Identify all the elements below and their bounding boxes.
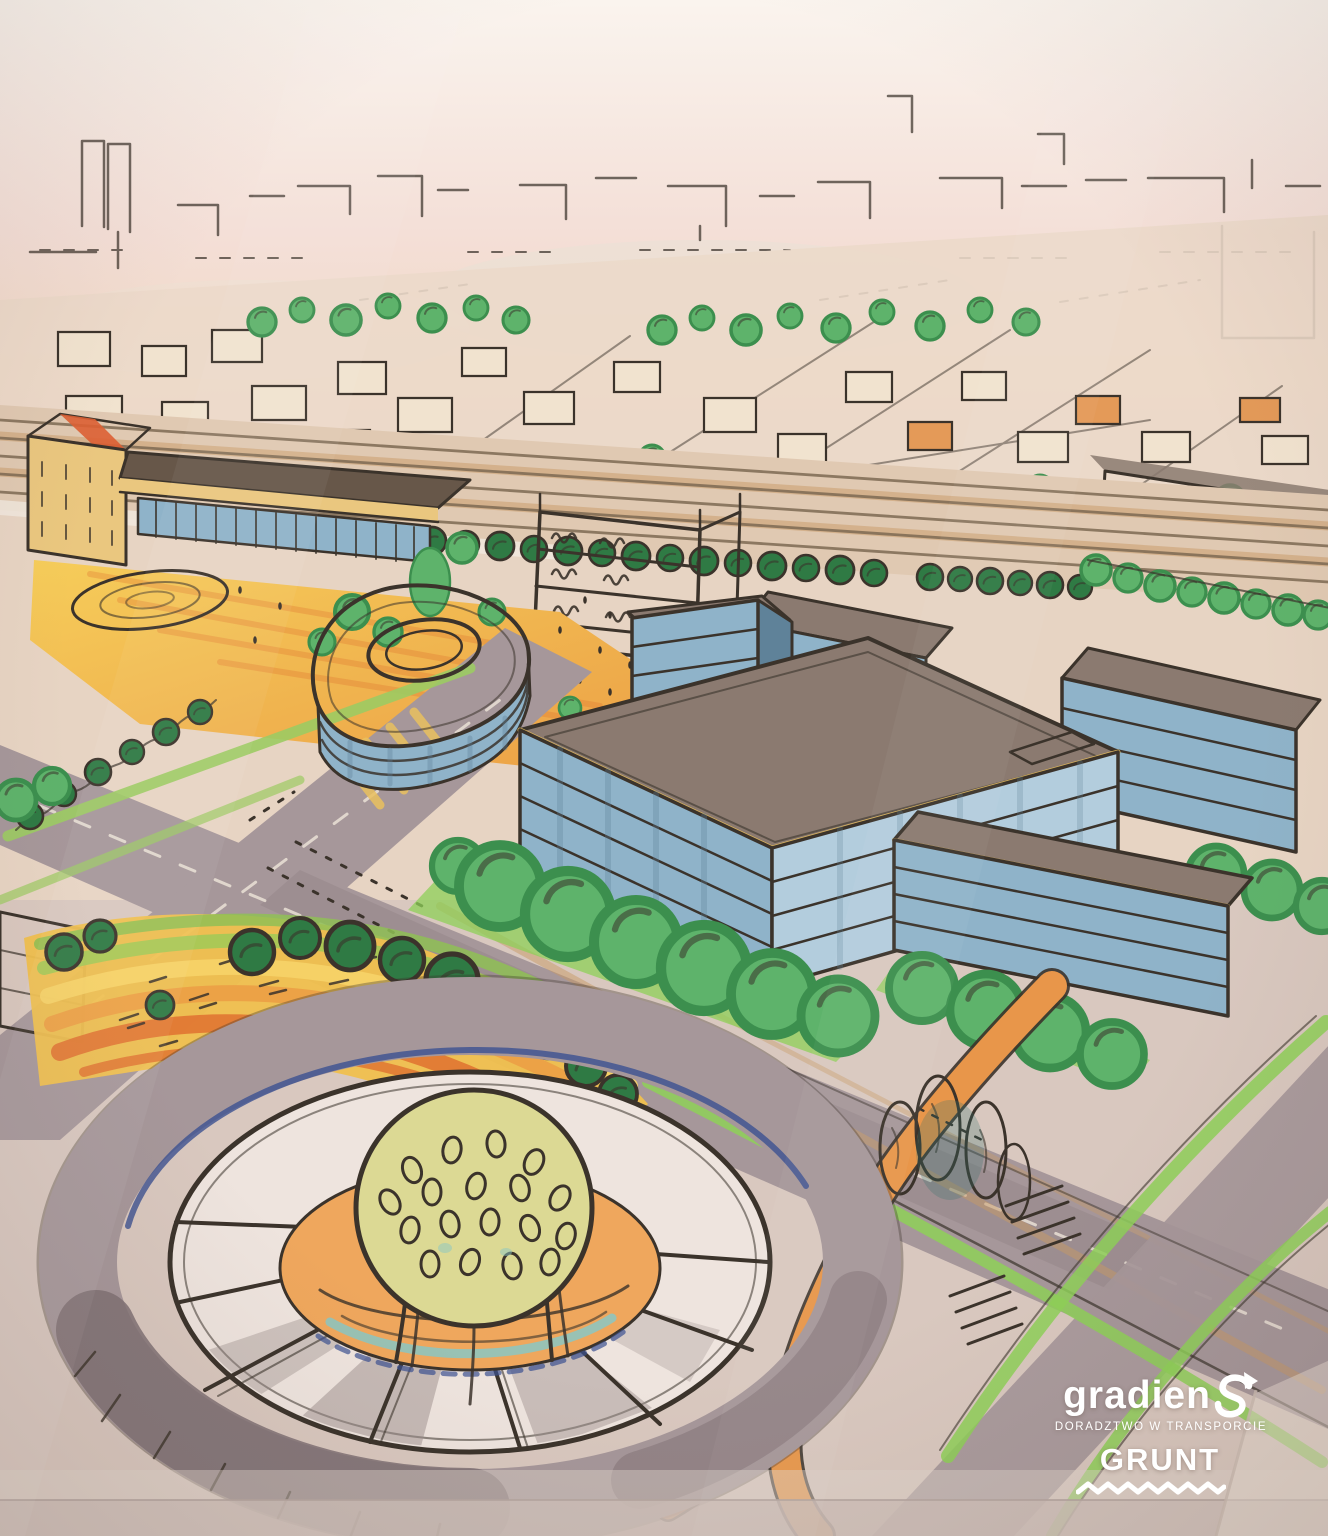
gradiens-logo: gradien DORADZTWO W TRANSPORCIE <box>1030 1370 1292 1433</box>
gradiens-wordmark: gradien <box>1063 1376 1211 1415</box>
vignette <box>0 0 1328 1536</box>
gradiens-s-arrow-icon <box>1213 1370 1259 1420</box>
sketch-photo: gradien DORADZTWO W TRANSPORCIE GRUNT <box>0 0 1328 1536</box>
grunt-wordmark: GRUNT <box>1076 1444 1244 1475</box>
gradiens-tagline: DORADZTWO W TRANSPORCIE <box>1030 1421 1292 1433</box>
grunt-zigzag-icon <box>1076 1479 1226 1497</box>
grunt-logo: GRUNT <box>1076 1444 1244 1497</box>
sketch-canvas <box>0 0 1328 1536</box>
